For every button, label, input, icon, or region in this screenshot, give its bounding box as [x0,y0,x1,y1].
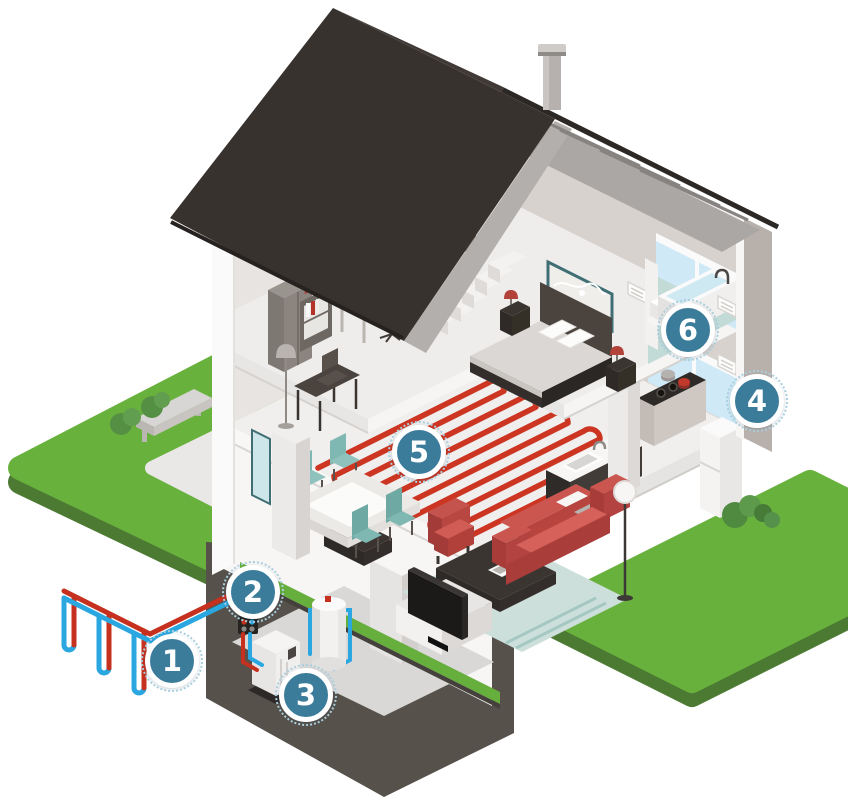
marker-supply-lines[interactable]: 2 [226,565,280,619]
marker-number: 3 [296,681,316,710]
marker-underfloor-heating[interactable]: 5 [392,425,446,479]
marker-number: 4 [747,387,767,416]
chimney [538,44,566,110]
marker-number: 6 [678,316,698,345]
water-tank [310,596,350,671]
marker-ground-loop[interactable]: 1 [145,634,199,688]
house-cutaway-illustration: 1 2 3 4 5 6 [0,0,848,799]
marker-number: 5 [409,438,429,467]
wall-cut-face [212,203,234,575]
marker-heat-pump[interactable]: 3 [279,668,333,722]
isometric-house-drawing [0,0,848,799]
marker-number: 1 [162,647,182,676]
marker-exterior-wall[interactable]: 4 [730,374,784,428]
marker-number: 2 [243,578,263,607]
marker-bathroom[interactable]: 6 [661,303,715,357]
glass-door [252,430,270,504]
